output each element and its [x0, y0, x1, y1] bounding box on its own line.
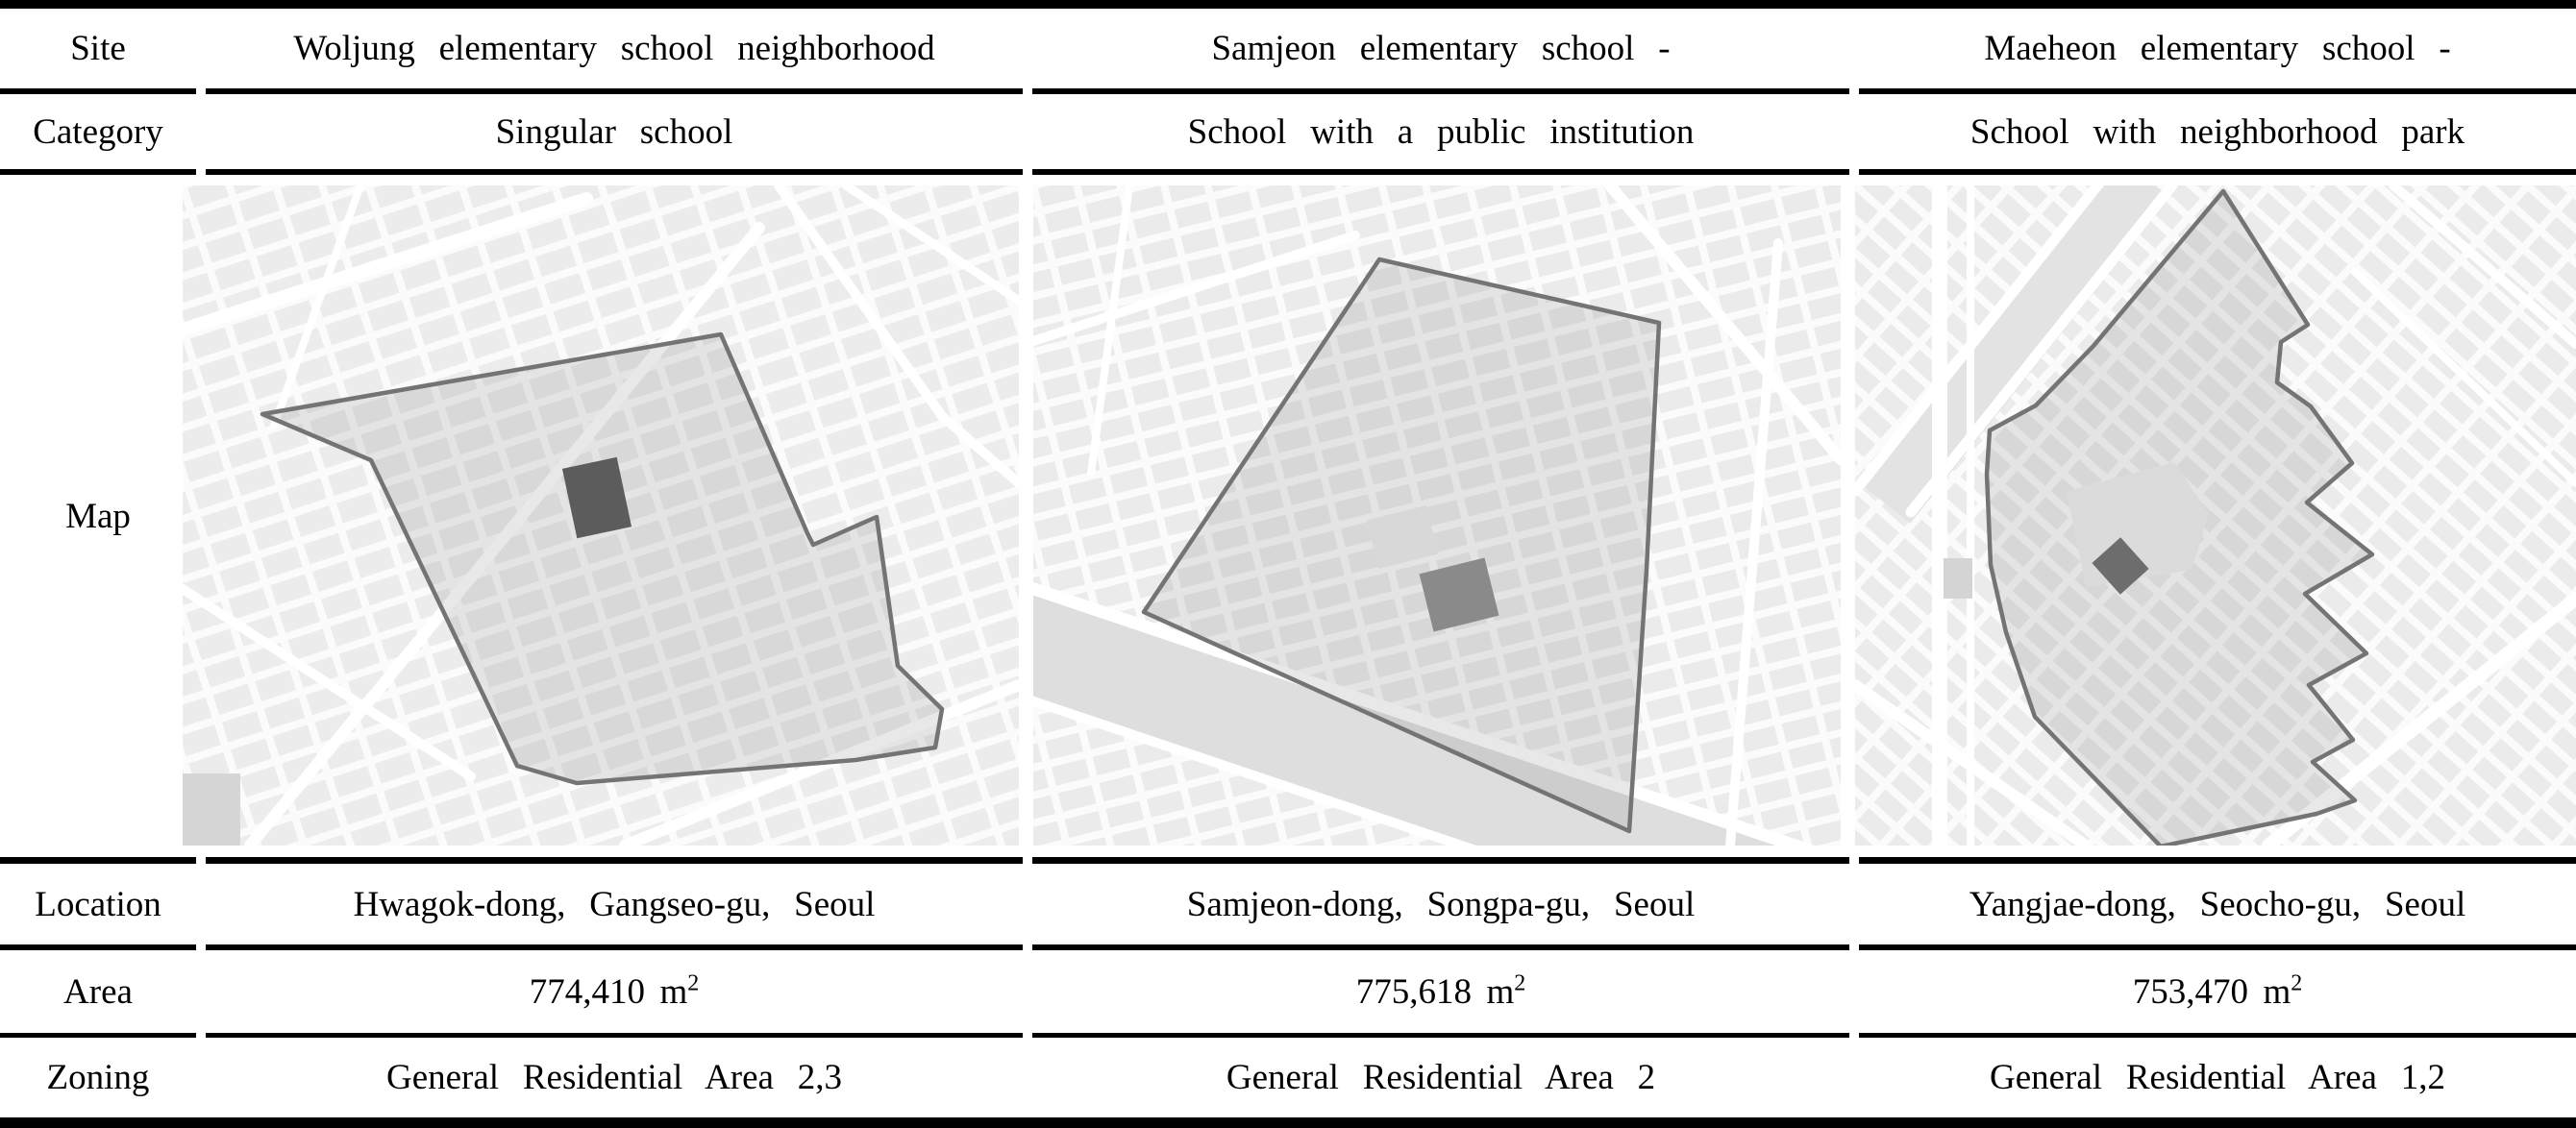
area-unit-letter: m: [660, 972, 688, 1012]
maeheon-site-map-image: [1855, 185, 2576, 846]
location-label-text: Location: [35, 884, 161, 925]
map-row-label: Map: [0, 175, 196, 864]
area-cell-1: 774,410 m2: [206, 950, 1023, 1038]
zoning-row-label: Zoning: [0, 1038, 196, 1117]
category-cell-2: School with a public institution: [1032, 94, 1849, 175]
zoning-label-text: Zoning: [47, 1057, 150, 1098]
category-cell-1: Singular school: [206, 94, 1023, 175]
site-cell-3: Maeheon elementary school -: [1859, 9, 2576, 94]
area-unit-1: m2: [660, 971, 700, 1013]
category-cell-3: School with neighborhood park: [1859, 94, 2576, 175]
site-value-1: Woljung elementary school neighborhood: [293, 28, 934, 69]
location-cell-2: Samjeon-dong, Songpa-gu, Seoul: [1032, 864, 1849, 950]
zoning-cell-1: General Residential Area 2,3: [206, 1038, 1023, 1117]
zoning-value-3: General Residential Area 1,2: [1990, 1057, 2445, 1098]
area-cell-3: 753,470 m2: [1859, 950, 2576, 1038]
zoning-cell-2: General Residential Area 2: [1032, 1038, 1849, 1117]
area-unit-3: m2: [2264, 971, 2303, 1013]
area-value-3: 753,470: [2133, 971, 2248, 1013]
zoning-row: Zoning General Residential Area 2,3 Gene…: [0, 1038, 2576, 1117]
category-value-2: School with a public institution: [1188, 111, 1695, 153]
map-row: Map: [0, 175, 2576, 864]
location-value-2: Samjeon-dong, Songpa-gu, Seoul: [1187, 884, 1695, 925]
site-value-3: Maeheon elementary school -: [1984, 28, 2450, 69]
category-value-1: Singular school: [496, 111, 733, 153]
area-row: Area 774,410 m2 775,618 m2 753,470 m2: [0, 950, 2576, 1038]
site-cell-1: Woljung elementary school neighborhood: [206, 9, 1023, 94]
location-value-1: Hwagok-dong, Gangseo-gu, Seoul: [354, 884, 876, 925]
area-label-text: Area: [63, 971, 133, 1013]
location-row: Location Hwagok-dong, Gangseo-gu, Seoul …: [0, 864, 2576, 950]
site-comparison-table: Site Woljung elementary school neighborh…: [0, 0, 2576, 1128]
samjeon-site-map-image: [1033, 185, 1841, 846]
area-unit-exponent: 2: [2291, 970, 2302, 995]
woljung-site-map-image: [183, 185, 1019, 846]
area-unit-exponent: 2: [687, 970, 699, 995]
site-value-2: Samjeon elementary school -: [1211, 28, 1670, 69]
zoning-value-2: General Residential Area 2: [1226, 1057, 1655, 1098]
area-cell-2: 775,618 m2: [1032, 950, 1849, 1038]
woljung-map-tile: [183, 185, 1019, 846]
area-row-label: Area: [0, 950, 196, 1038]
category-row: Category Singular school School with a p…: [0, 94, 2576, 175]
area-unit-letter: m: [2264, 972, 2291, 1012]
samjeon-map-tile: [1033, 185, 1841, 846]
location-cell-3: Yangjae-dong, Seocho-gu, Seoul: [1859, 864, 2576, 950]
location-value-3: Yangjae-dong, Seocho-gu, Seoul: [1969, 884, 2466, 925]
location-cell-1: Hwagok-dong, Gangseo-gu, Seoul: [206, 864, 1023, 950]
area-unit-2: m2: [1487, 971, 1526, 1013]
maeheon-map-tile: [1855, 185, 2576, 846]
zoning-cell-3: General Residential Area 1,2: [1859, 1038, 2576, 1117]
site-label-text: Site: [70, 28, 126, 69]
category-value-3: School with neighborhood park: [1970, 111, 2465, 153]
site-row: Site Woljung elementary school neighborh…: [0, 9, 2576, 94]
category-label-text: Category: [33, 111, 163, 153]
area-value-1: 774,410: [530, 971, 645, 1013]
category-row-label: Category: [0, 94, 196, 175]
zoning-value-1: General Residential Area 2,3: [386, 1057, 842, 1098]
map-label-text: Map: [65, 496, 131, 537]
area-unit-exponent: 2: [1514, 970, 1525, 995]
location-row-label: Location: [0, 864, 196, 950]
area-unit-letter: m: [1487, 972, 1515, 1012]
area-value-2: 775,618: [1356, 971, 1472, 1013]
site-row-label: Site: [0, 9, 196, 94]
site-cell-2: Samjeon elementary school -: [1032, 9, 1849, 94]
